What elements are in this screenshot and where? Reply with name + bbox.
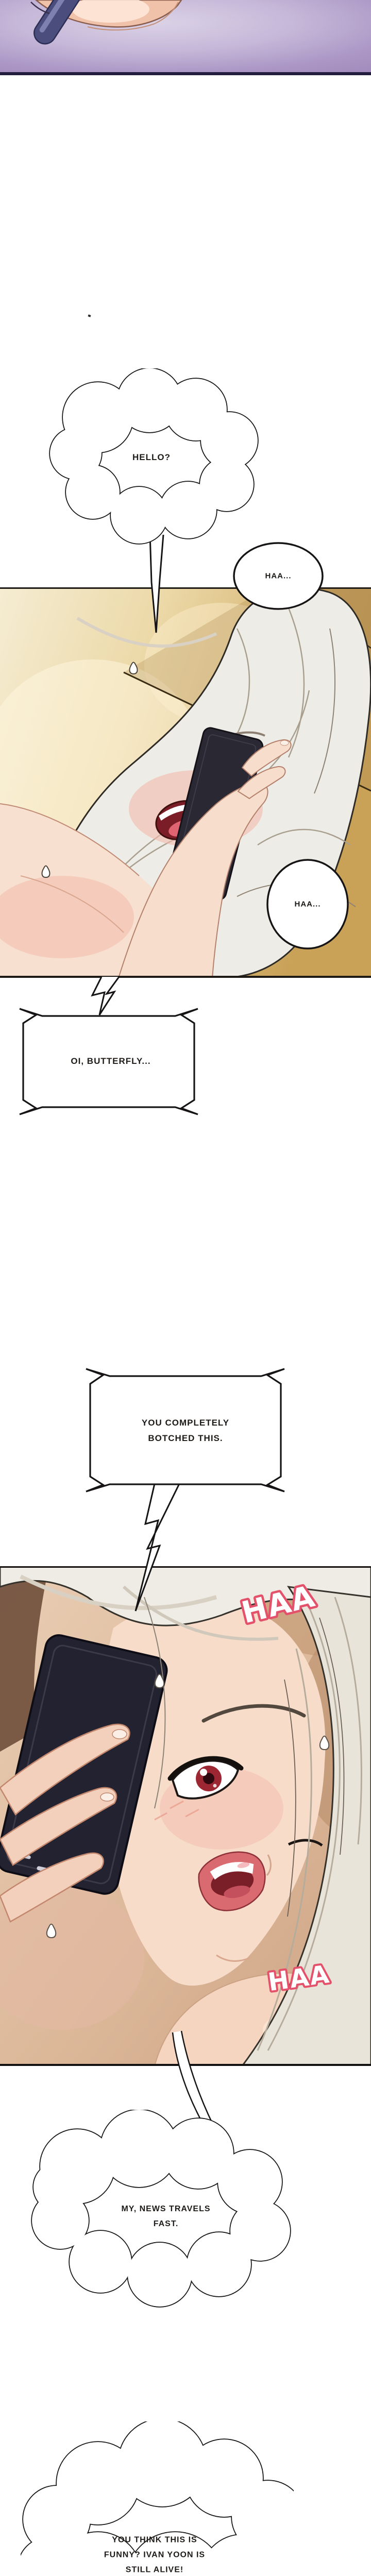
oi-bubble-text: OI, BUTTERFLY... (71, 1054, 150, 1069)
sfx-haa-bottom: HAA (252, 1946, 345, 2008)
sfx-haa-top: HAA (227, 1567, 330, 1639)
botched-bubble-text: YOU COMPLETELY BOTCHED THIS. (142, 1415, 229, 1446)
sfx-haa-top-text: HAA (238, 1578, 318, 1630)
haa-bubble-2-text: HAA... (295, 900, 321, 909)
funny-bubble-text: YOU THINK THIS IS FUNNY? IVAN YOON IS ST… (104, 2533, 205, 2576)
stray-mark (88, 314, 91, 317)
intro-panel (0, 0, 371, 75)
haa-bubble-1-text: HAA... (265, 572, 292, 581)
intro-border (0, 72, 371, 75)
webtoon-page: HELLO? HAA... HAA... OI, BUTTERFLY... (0, 0, 371, 2576)
news-bubble-text: MY, NEWS TRAVELS FAST. (121, 2201, 210, 2231)
hello-bubble-text: HELLO? (132, 450, 171, 465)
sfx-haa-bottom-text: HAA (266, 1960, 332, 1997)
